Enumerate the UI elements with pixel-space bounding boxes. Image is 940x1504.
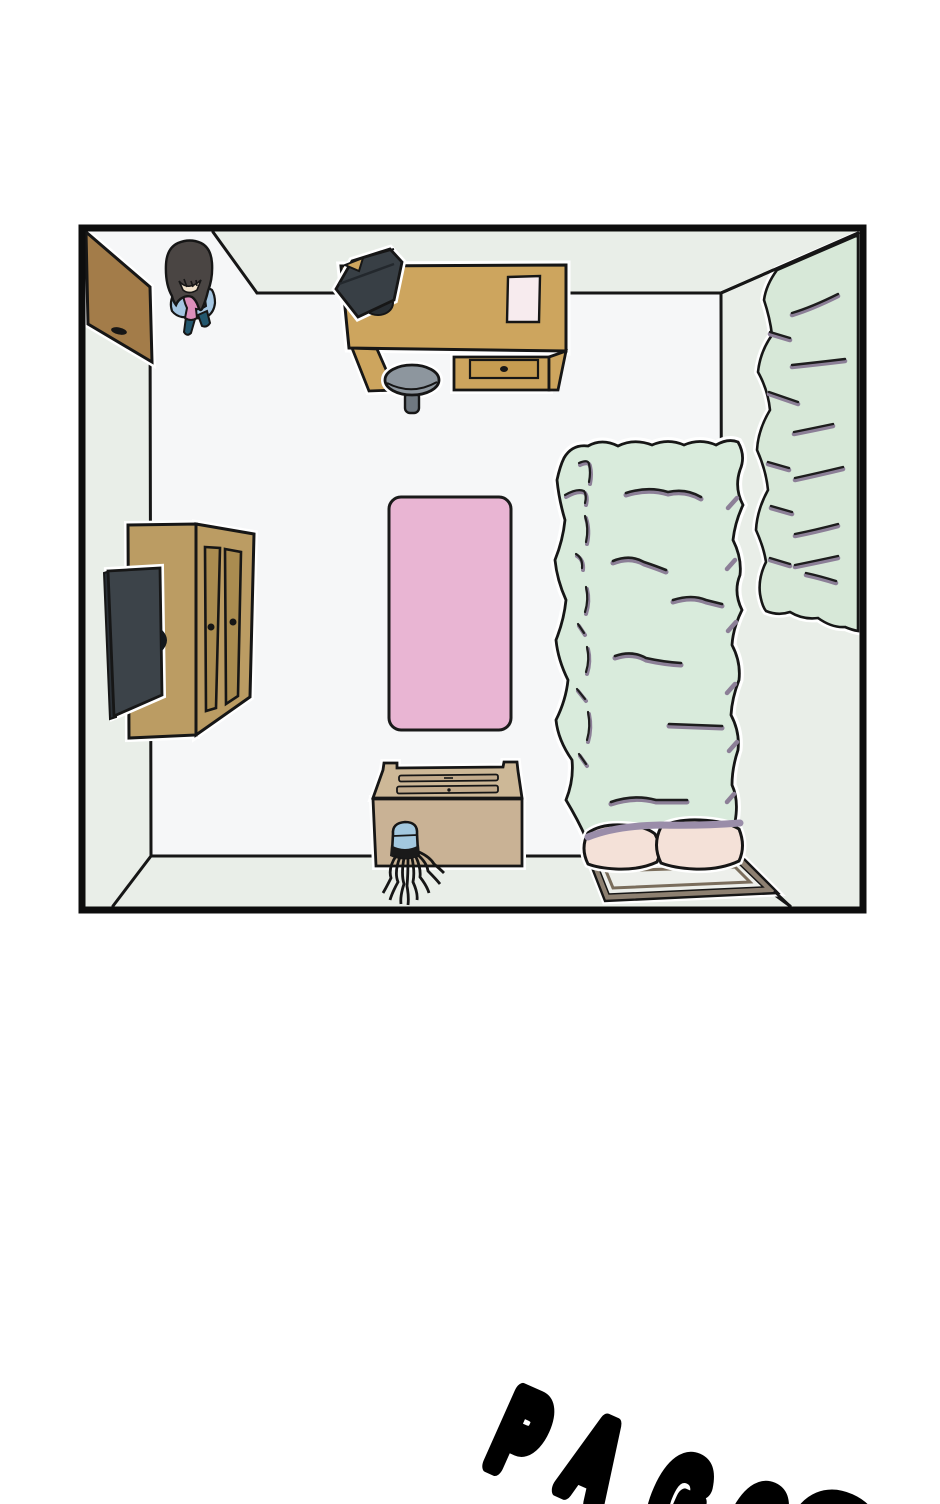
svg-text:G: G: [631, 1432, 728, 1504]
svg-text:A: A: [547, 1394, 641, 1504]
svg-text:P: P: [475, 1369, 565, 1501]
